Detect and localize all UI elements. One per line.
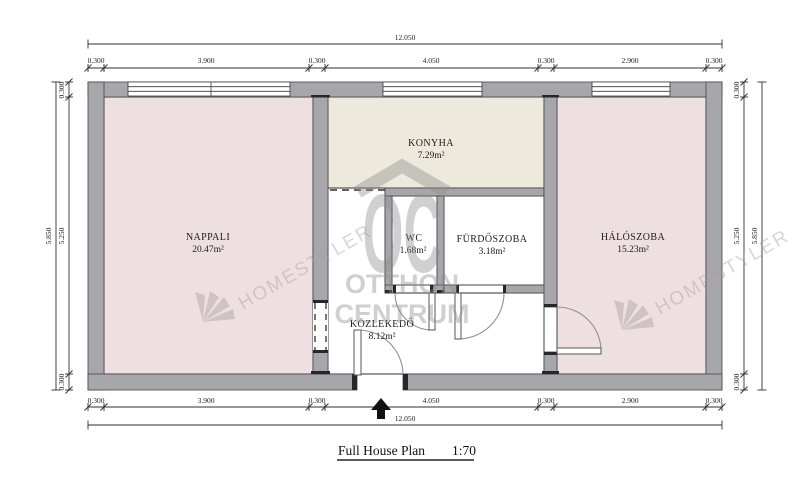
dim-left-1: 5.250 bbox=[57, 227, 66, 244]
floor-plan-canvas: NAPPALI 20.47m² KONYHA 7.29m² WC 1.68m² … bbox=[0, 0, 800, 480]
dim-right-0: 0.300 bbox=[732, 81, 741, 98]
dimension-top: 12.050 0.300 3.900 0.300 4.050 0.300 2.9… bbox=[85, 33, 726, 72]
dim-bot-1: 3.900 bbox=[198, 396, 215, 405]
wall-bottom-right bbox=[403, 374, 722, 390]
label-haloszoba-area: 15.23m² bbox=[617, 245, 649, 255]
plan-scale: 1:70 bbox=[452, 443, 476, 458]
window-haloszoba bbox=[592, 82, 670, 96]
label-haloszoba-name: HÁLÓSZOBA bbox=[601, 231, 666, 243]
dim-bottom-total: 12.050 bbox=[395, 414, 416, 423]
label-nappali-area: 20.47m² bbox=[192, 245, 224, 255]
dim-bot-2: 0.300 bbox=[309, 396, 326, 405]
dim-left-2: 0.300 bbox=[57, 373, 66, 390]
wall-bedroom-lower bbox=[544, 352, 557, 374]
dimension-right: 0.300 5.250 0.300 5.850 bbox=[732, 79, 767, 394]
label-furdoszoba-name: FÜRDŐSZOBA bbox=[457, 233, 528, 245]
window-nappali bbox=[128, 82, 290, 96]
dim-top-6: 0.300 bbox=[706, 56, 723, 65]
label-nappali-name: NAPPALI bbox=[186, 232, 230, 243]
title-block: Full House Plan 1:70 bbox=[337, 443, 476, 460]
wall-bottom-left bbox=[88, 374, 357, 390]
dim-top-0: 0.300 bbox=[88, 56, 105, 65]
floor-plan-drawing: NAPPALI 20.47m² KONYHA 7.29m² WC 1.68m² … bbox=[0, 0, 800, 480]
dim-bot-4: 0.300 bbox=[538, 396, 555, 405]
dim-top-3: 4.050 bbox=[423, 56, 440, 65]
logo-centrum: CENTRUM bbox=[335, 299, 470, 329]
dim-top-4: 0.300 bbox=[538, 56, 555, 65]
dim-right-1: 5.250 bbox=[732, 227, 741, 244]
dim-left-0: 0.300 bbox=[57, 81, 66, 98]
label-furdoszoba-area: 3.18m² bbox=[479, 247, 506, 257]
dim-left-total: 5.850 bbox=[44, 227, 53, 244]
plan-title: Full House Plan bbox=[338, 443, 425, 458]
entrance-arrow-icon bbox=[371, 398, 391, 419]
dimension-bottom: 0.300 3.900 0.300 4.050 0.300 2.900 0.30… bbox=[85, 396, 726, 430]
dim-top-1: 3.900 bbox=[198, 56, 215, 65]
dim-top-5: 2.900 bbox=[622, 56, 639, 65]
dim-top-total: 12.050 bbox=[395, 33, 416, 42]
label-kozlekedo-area: 8.12m² bbox=[369, 332, 396, 342]
dim-bot-0: 0.300 bbox=[88, 396, 105, 405]
wall-right bbox=[706, 82, 722, 390]
dim-bot-5: 2.900 bbox=[622, 396, 639, 405]
dim-top-2: 0.300 bbox=[309, 56, 326, 65]
wall-nappali-lower bbox=[313, 350, 328, 374]
wall-bedroom-upper bbox=[544, 97, 557, 307]
wall-left bbox=[88, 82, 104, 390]
logo-otthon: OTTHON bbox=[345, 269, 459, 299]
label-konyha-name: KONYHA bbox=[408, 138, 454, 149]
dim-right-2: 0.300 bbox=[732, 373, 741, 390]
dimension-left: 5.850 0.300 5.250 0.300 bbox=[44, 79, 73, 394]
dim-bot-3: 4.050 bbox=[423, 396, 440, 405]
window-konyha bbox=[383, 82, 482, 96]
label-konyha-area: 7.29m² bbox=[418, 151, 445, 161]
dim-bot-6: 0.300 bbox=[706, 396, 723, 405]
